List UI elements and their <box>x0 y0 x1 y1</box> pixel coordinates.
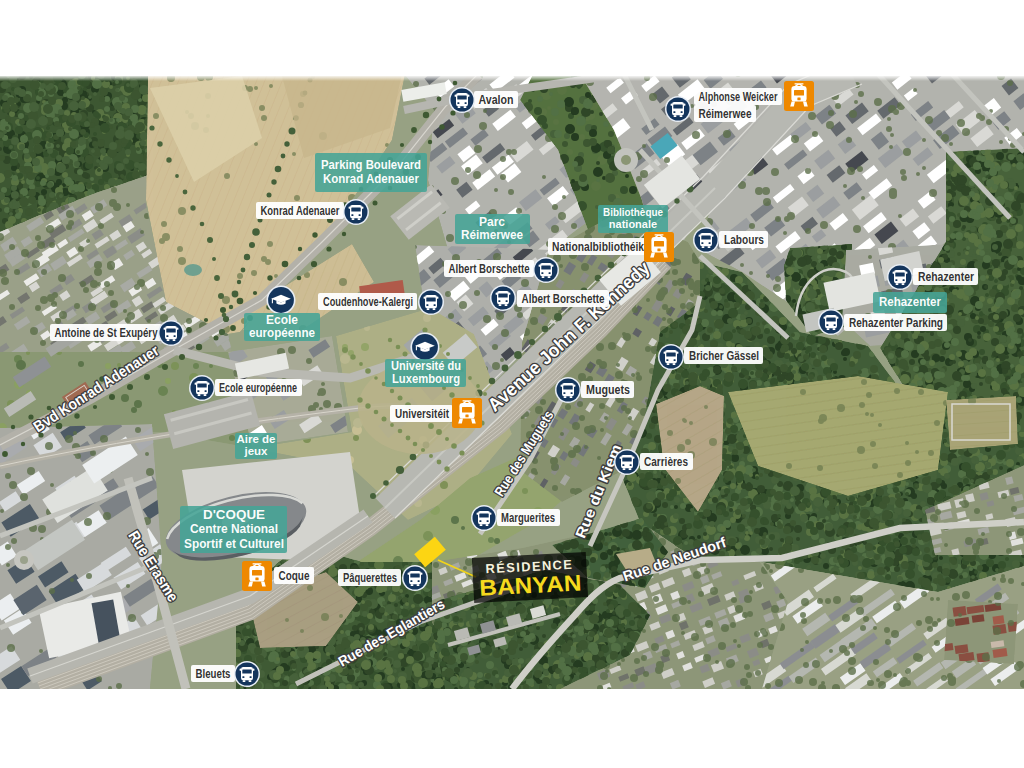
svg-text:Konrad Adenauer: Konrad Adenauer <box>261 204 340 218</box>
svg-text:jeux: jeux <box>243 445 268 457</box>
svg-text:Réimerwee: Réimerwee <box>699 107 752 121</box>
svg-text:BANYAN: BANYAN <box>479 570 582 600</box>
svg-text:Marguerites: Marguerites <box>501 511 555 525</box>
svg-text:D'COQUE: D'COQUE <box>203 508 265 522</box>
svg-text:Rehazenter Parking: Rehazenter Parking <box>849 316 943 330</box>
svg-text:nationale: nationale <box>609 218 657 230</box>
svg-text:Coque: Coque <box>279 569 310 583</box>
svg-text:Parc: Parc <box>479 215 505 229</box>
svg-text:européenne: européenne <box>249 326 315 340</box>
svg-text:Antoine de St Exupéry: Antoine de St Exupéry <box>55 326 158 340</box>
svg-text:Coudenhove-Kalergi: Coudenhove-Kalergi <box>323 295 413 309</box>
svg-text:Centre National: Centre National <box>190 522 278 536</box>
svg-text:Parking Boulevard: Parking Boulevard <box>321 158 421 172</box>
svg-text:Nationalbibliothéik: Nationalbibliothéik <box>552 240 644 254</box>
svg-text:Albert Borschette: Albert Borschette <box>449 262 530 276</box>
svg-text:Universitéit: Universitéit <box>395 407 450 421</box>
svg-text:Bleuets: Bleuets <box>196 667 231 681</box>
svg-text:Avalon: Avalon <box>479 93 514 107</box>
svg-text:Ecole: Ecole <box>266 313 298 327</box>
svg-text:Ecole européenne: Ecole européenne <box>219 381 297 395</box>
svg-text:Rehazenter: Rehazenter <box>918 270 974 284</box>
svg-text:Muguets: Muguets <box>586 383 630 397</box>
svg-text:Bricher Gässel: Bricher Gässel <box>689 349 759 363</box>
svg-text:Carrières: Carrières <box>644 455 688 469</box>
svg-text:Aire de: Aire de <box>237 433 276 445</box>
svg-text:Rehazenter: Rehazenter <box>879 295 941 309</box>
svg-text:Luxembourg: Luxembourg <box>392 372 460 386</box>
svg-text:Sportif et Culturel: Sportif et Culturel <box>184 537 284 551</box>
svg-text:Konrad Adenauer: Konrad Adenauer <box>323 172 419 186</box>
svg-text:Albert Borschette: Albert Borschette <box>522 292 605 306</box>
svg-text:Bibliothèque: Bibliothèque <box>603 206 663 218</box>
svg-text:Labours: Labours <box>724 233 764 247</box>
svg-text:Pâquerettes: Pâquerettes <box>343 571 397 585</box>
svg-text:Université du: Université du <box>391 359 461 373</box>
svg-text:Alphonse Weicker: Alphonse Weicker <box>699 90 778 104</box>
svg-text:Réimerwee: Réimerwee <box>461 228 523 242</box>
